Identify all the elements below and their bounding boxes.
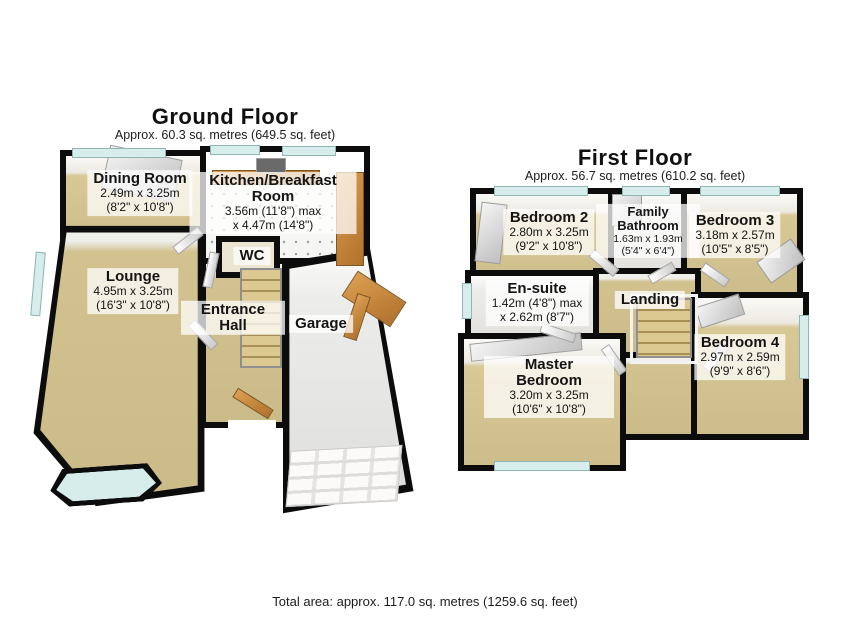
label-bedroom-4: Bedroom 4 2.97m x 2.59m (9'9" x 8'6") bbox=[694, 334, 785, 380]
room-landing-hall bbox=[618, 352, 701, 440]
total-area-text: Total area: approx. 117.0 sq. metres (12… bbox=[0, 594, 850, 609]
room-dims-metric: 4.95m x 3.25m bbox=[93, 285, 172, 299]
window bbox=[622, 186, 670, 196]
window bbox=[494, 186, 588, 196]
room-dims-metric: 3.18m x 2.57m bbox=[695, 229, 774, 243]
window bbox=[30, 252, 46, 317]
room-dims-metric: 2.80m x 3.25m bbox=[509, 226, 588, 240]
garage-door bbox=[286, 445, 403, 507]
room-name: Dining Room bbox=[93, 171, 186, 187]
label-bedroom-2: Bedroom 2 2.80m x 3.25m (9'2" x 10'8") bbox=[503, 209, 594, 255]
label-kitchen: Kitchen/Breakfast Room 3.56m (11'8") max… bbox=[190, 172, 357, 234]
label-landing: Landing bbox=[615, 291, 685, 309]
window bbox=[494, 461, 590, 471]
label-family-bathroom: Family Bathroom 1.63m x 1.93m (5'4" x 6'… bbox=[596, 204, 700, 258]
room-dims-metric: 2.49m x 3.25m bbox=[93, 187, 186, 201]
window bbox=[210, 145, 260, 155]
room-dims-imperial: (16'3" x 10'8") bbox=[93, 299, 172, 313]
ground-floor-title: Ground Floor bbox=[70, 104, 380, 130]
room-dims-metric: 2.97m x 2.59m bbox=[700, 351, 779, 365]
window bbox=[462, 283, 472, 319]
room-name: Bedroom 2 bbox=[509, 210, 588, 226]
room-name: Master Bedroom bbox=[490, 357, 608, 389]
room-name: Garage bbox=[295, 316, 347, 332]
window bbox=[799, 315, 809, 379]
room-name: Bedroom 3 bbox=[695, 213, 774, 229]
room-dims-imperial: (9'2" x 10'8") bbox=[509, 240, 588, 254]
window bbox=[700, 186, 780, 196]
label-master-bedroom: Master Bedroom 3.20m x 3.25m (10'6" x 10… bbox=[484, 356, 614, 418]
room-dims-metric: 3.20m x 3.25m bbox=[490, 389, 608, 403]
room-dims-imperial: (5'4" x 6'4") bbox=[602, 245, 694, 257]
room-name: WC bbox=[240, 248, 265, 264]
room-dims-imperial: (8'2" x 10'8") bbox=[93, 201, 186, 215]
room-dims-imperial: x 4.47m (14'8") bbox=[196, 219, 351, 233]
room-name: Lounge bbox=[93, 269, 172, 285]
room-name: Bedroom 4 bbox=[700, 335, 779, 351]
floorplan-canvas: Ground Floor Approx. 60.3 sq. metres (64… bbox=[0, 0, 850, 618]
window bbox=[72, 148, 166, 158]
room-name: Entrance Hall bbox=[187, 302, 279, 334]
label-en-suite: En-suite 1.42m (4'8") max x 2.62m (8'7") bbox=[486, 280, 589, 326]
room-dims-imperial: x 2.62m (8'7") bbox=[492, 311, 583, 325]
label-dining-room: Dining Room 2.49m x 3.25m (8'2" x 10'8") bbox=[87, 170, 192, 216]
label-wc: WC bbox=[234, 247, 271, 265]
room-name: Family Bathroom bbox=[602, 205, 694, 233]
room-dims-metric: 1.42m (4'8") max bbox=[492, 297, 583, 311]
room-dims-metric: 3.56m (11'8") max bbox=[196, 205, 351, 219]
label-entrance-hall: Entrance Hall bbox=[181, 301, 285, 335]
label-lounge: Lounge 4.95m x 3.25m (16'3" x 10'8") bbox=[87, 268, 178, 314]
room-name: Kitchen/Breakfast Room bbox=[196, 173, 351, 205]
label-garage: Garage bbox=[289, 315, 353, 333]
window bbox=[282, 146, 336, 156]
ground-floor-subtitle: Approx. 60.3 sq. metres (649.5 sq. feet) bbox=[70, 128, 380, 142]
cooker-hob bbox=[256, 158, 286, 173]
room-dims-metric: 1.63m x 1.93m bbox=[602, 233, 694, 245]
room-dims-imperial: (9'9" x 8'6") bbox=[700, 365, 779, 379]
room-name: En-suite bbox=[492, 281, 583, 297]
first-floor-title: First Floor bbox=[480, 145, 790, 171]
room-name: Landing bbox=[621, 292, 679, 308]
room-dims-imperial: (10'6" x 10'8") bbox=[490, 403, 608, 417]
bay-window-glass bbox=[55, 468, 157, 503]
label-bedroom-3: Bedroom 3 3.18m x 2.57m (10'5" x 8'5") bbox=[689, 212, 780, 258]
bay-window bbox=[49, 462, 163, 508]
front-door-opening bbox=[228, 420, 276, 432]
room-dims-imperial: (10'5" x 8'5") bbox=[695, 243, 774, 257]
first-floor-subtitle: Approx. 56.7 sq. metres (610.2 sq. feet) bbox=[480, 169, 790, 183]
